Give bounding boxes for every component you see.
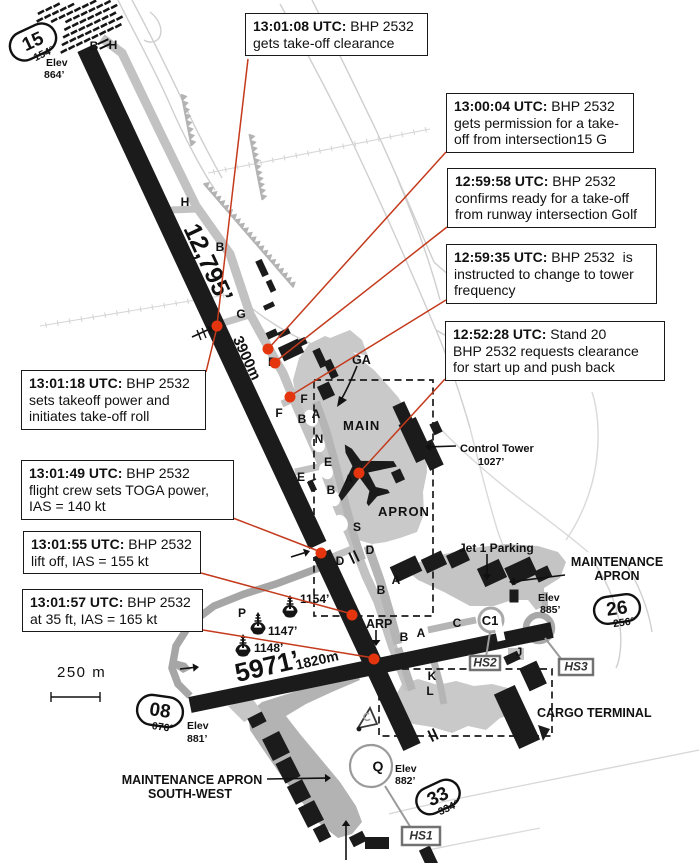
svg-text:A: A bbox=[345, 472, 354, 486]
svg-text:F: F bbox=[275, 406, 282, 420]
svg-text:864’: 864’ bbox=[44, 69, 65, 81]
svg-text:1027’: 1027’ bbox=[478, 456, 504, 468]
svg-text:J: J bbox=[516, 645, 523, 659]
svg-text:APRON: APRON bbox=[594, 569, 639, 583]
svg-text:G: G bbox=[236, 307, 245, 321]
svg-text:Elev: Elev bbox=[538, 592, 560, 604]
svg-text:HS3: HS3 bbox=[564, 660, 588, 674]
svg-text:Elev: Elev bbox=[46, 57, 68, 69]
svg-text:B: B bbox=[298, 412, 307, 426]
svg-text:H: H bbox=[109, 38, 118, 52]
svg-text:Jet 1 Parking: Jet 1 Parking bbox=[459, 541, 534, 555]
svg-text:C1: C1 bbox=[482, 613, 499, 628]
svg-text:A: A bbox=[312, 407, 321, 421]
svg-text:N: N bbox=[315, 432, 324, 446]
svg-text:MAIN: MAIN bbox=[343, 418, 380, 433]
svg-text:B: B bbox=[400, 630, 409, 644]
svg-text:GA: GA bbox=[352, 353, 371, 367]
svg-text:S: S bbox=[353, 520, 361, 534]
svg-text:Q: Q bbox=[373, 758, 384, 774]
svg-text:L: L bbox=[426, 684, 433, 698]
svg-text:B: B bbox=[327, 483, 336, 497]
svg-text:SOUTH-WEST: SOUTH-WEST bbox=[148, 787, 232, 801]
svg-text:CARGO TERMINAL: CARGO TERMINAL bbox=[537, 706, 652, 720]
svg-text:B: B bbox=[377, 583, 386, 597]
svg-text:885’: 885’ bbox=[540, 604, 561, 616]
svg-text:ARP: ARP bbox=[366, 617, 392, 631]
svg-text:882’: 882’ bbox=[395, 775, 416, 787]
svg-text:B: B bbox=[90, 39, 99, 53]
svg-text:D: D bbox=[366, 543, 375, 557]
svg-text:H: H bbox=[181, 195, 190, 209]
svg-text:08: 08 bbox=[148, 699, 172, 723]
svg-text:Control Tower: Control Tower bbox=[460, 443, 534, 455]
svg-text:HS2: HS2 bbox=[473, 656, 497, 670]
svg-text:APRON: APRON bbox=[378, 504, 430, 519]
svg-text:HS1: HS1 bbox=[409, 829, 433, 843]
svg-text:K: K bbox=[428, 669, 437, 683]
svg-text:A: A bbox=[392, 573, 401, 587]
svg-text:Elev: Elev bbox=[395, 763, 417, 775]
svg-text:MAINTENANCE: MAINTENANCE bbox=[571, 555, 663, 569]
svg-text:D: D bbox=[336, 554, 345, 568]
svg-text:E: E bbox=[324, 455, 332, 469]
svg-text:250 m: 250 m bbox=[57, 664, 106, 681]
svg-text:E: E bbox=[297, 470, 305, 484]
svg-text:881’: 881’ bbox=[187, 733, 208, 745]
svg-text:1147’: 1147’ bbox=[268, 624, 297, 638]
svg-text:Elev: Elev bbox=[187, 720, 209, 732]
svg-text:A: A bbox=[417, 626, 426, 640]
svg-text:F: F bbox=[300, 392, 307, 406]
svg-text:P: P bbox=[238, 606, 246, 620]
svg-text:C: C bbox=[453, 616, 462, 630]
svg-text:B: B bbox=[216, 240, 225, 254]
svg-text:MAINTENANCE APRON: MAINTENANCE APRON bbox=[122, 773, 263, 787]
